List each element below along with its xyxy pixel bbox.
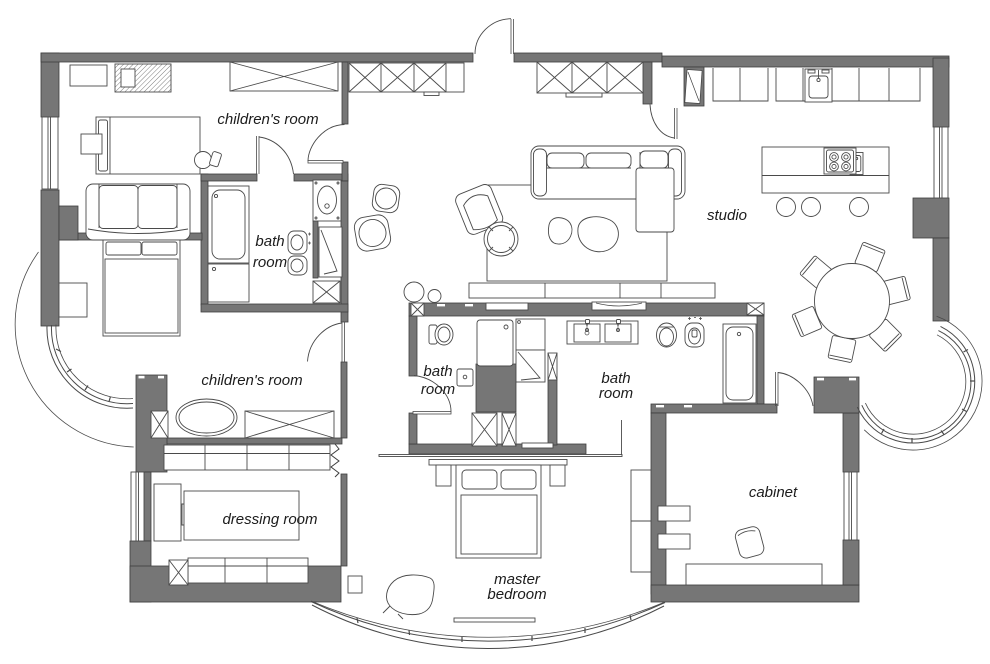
svg-text:bedroom: bedroom bbox=[487, 586, 546, 603]
svg-text:room: room bbox=[421, 381, 455, 398]
svg-text:studio: studio bbox=[707, 207, 747, 224]
svg-text:room: room bbox=[253, 254, 287, 271]
svg-text:children's room: children's room bbox=[201, 372, 302, 389]
svg-text:dressing room: dressing room bbox=[222, 511, 317, 528]
svg-text:children's room: children's room bbox=[217, 111, 318, 128]
svg-text:room: room bbox=[599, 385, 633, 402]
svg-text:bath: bath bbox=[423, 363, 452, 380]
svg-text:bath: bath bbox=[255, 233, 284, 250]
svg-text:cabinet: cabinet bbox=[749, 484, 798, 501]
